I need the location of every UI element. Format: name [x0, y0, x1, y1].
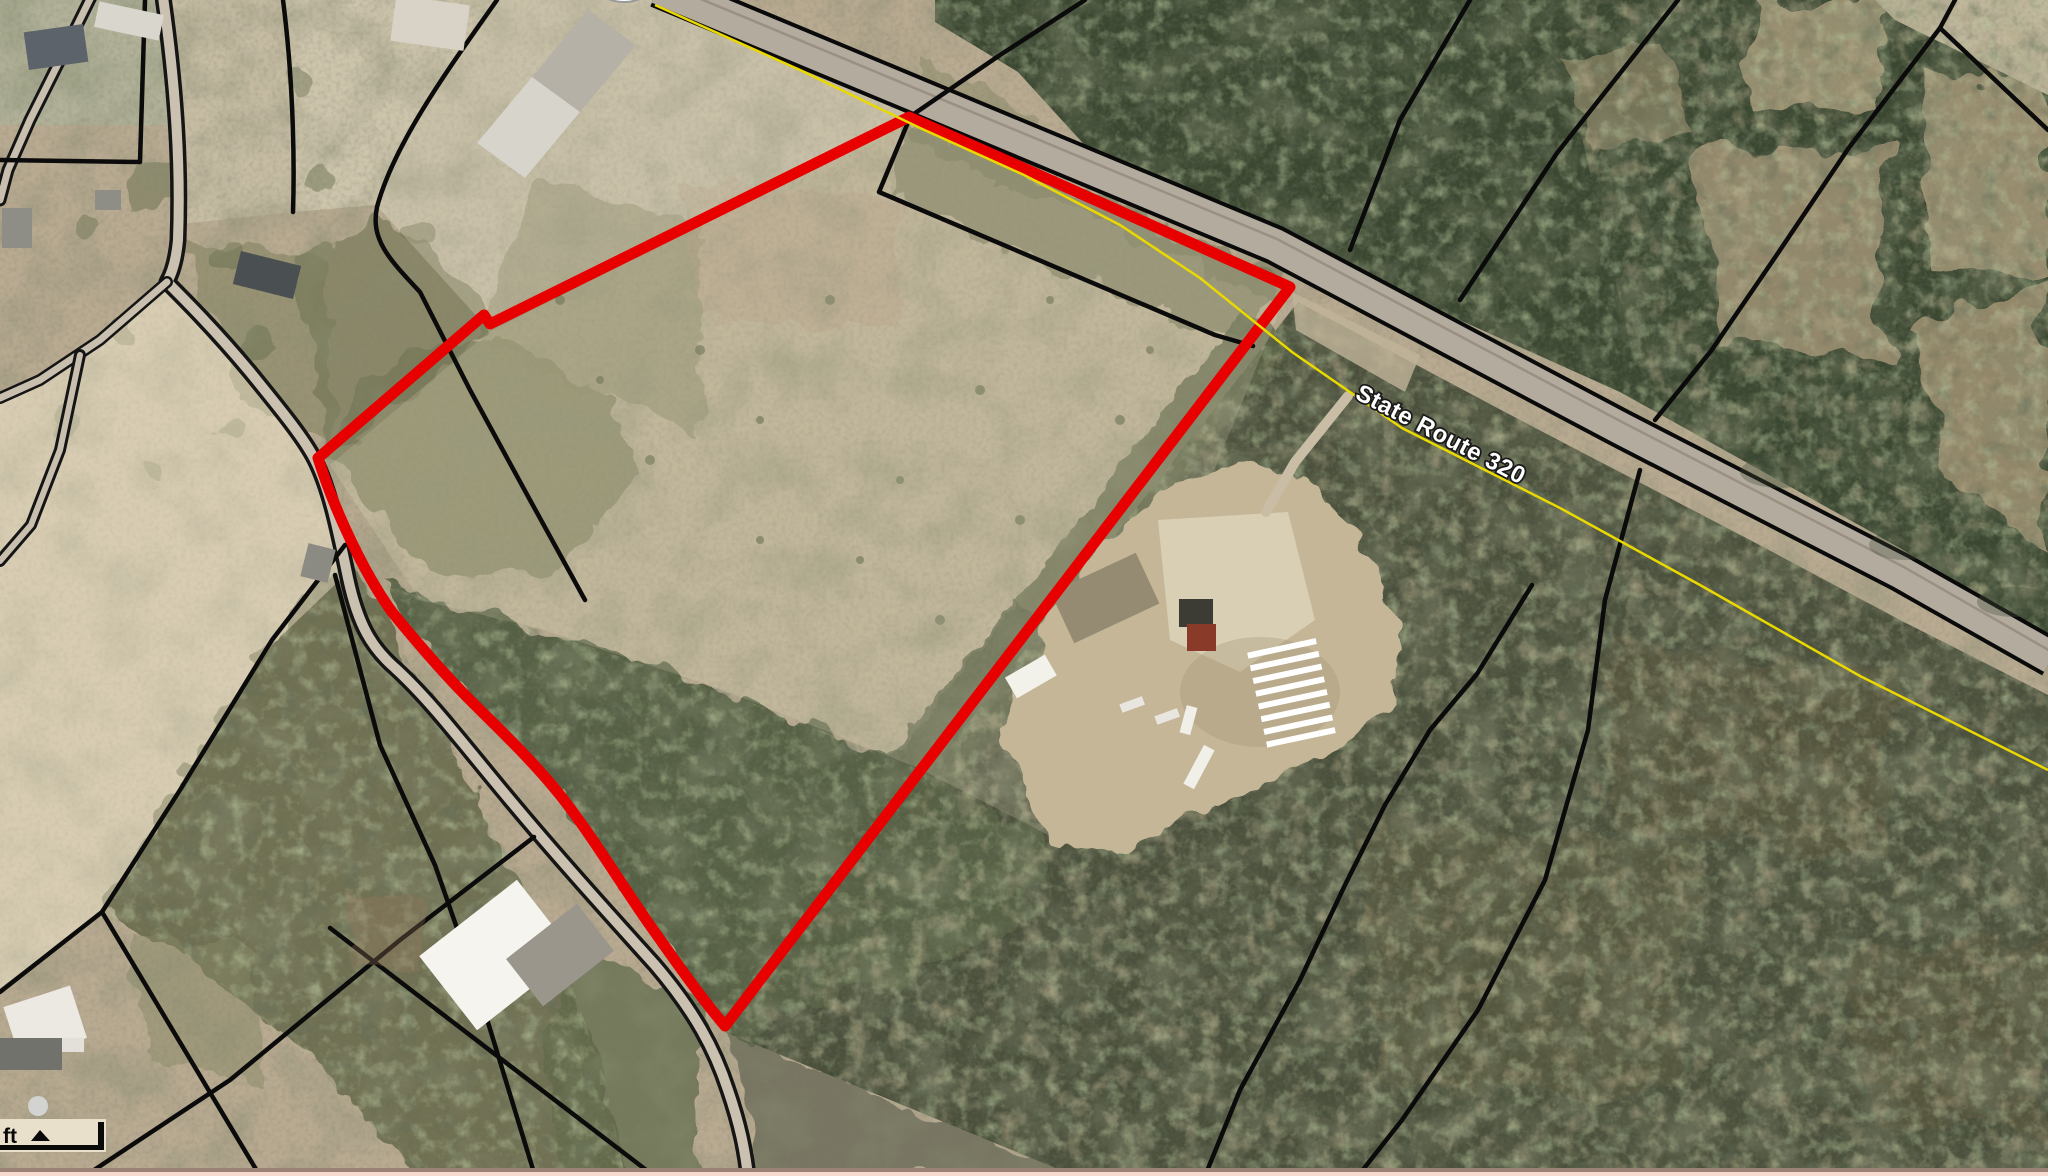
svg-text:ft: ft — [3, 1125, 17, 1148]
